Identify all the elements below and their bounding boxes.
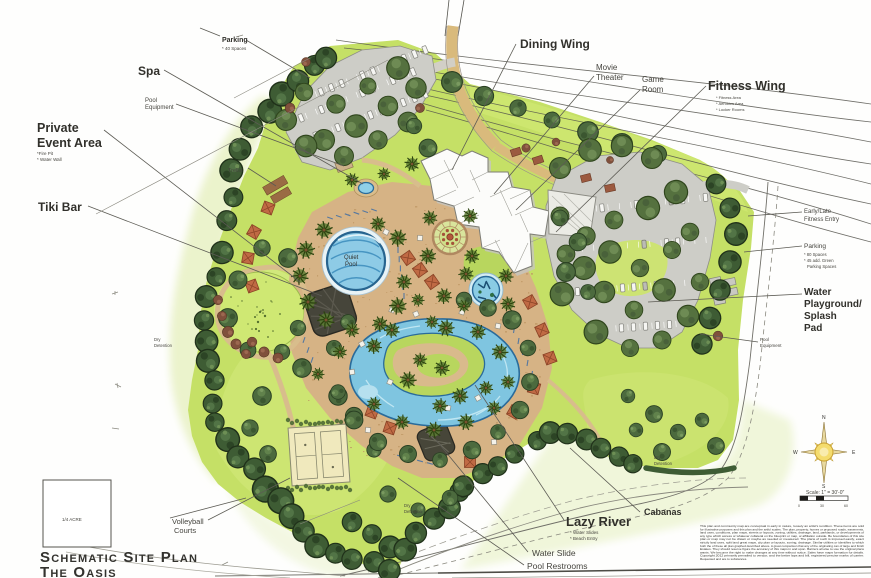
svg-text:Scale: 1" = 30′-0″: Scale: 1" = 30′-0″ [806,490,844,496]
svg-text:Parking Spaces: Parking Spaces [807,264,836,269]
svg-text:Pool: Pool [145,98,157,104]
svg-text:1/4 ACRE: 1/4 ACRE [62,517,82,522]
svg-text:N: N [822,415,826,421]
svg-text:Parking: Parking [222,37,248,44]
svg-text:Tiki Bar: Tiki Bar [38,200,82,214]
svg-text:Pool: Pool [345,262,357,268]
svg-text:Courts: Courts [174,526,196,535]
svg-text:Room: Room [642,85,664,94]
svg-text:* Aerobics Area: * Aerobics Area [716,101,744,106]
svg-text:* Water Slides: * Water Slides [570,530,599,535]
svg-text:Dry: Dry [404,503,411,508]
svg-text:Spa: Spa [138,64,160,78]
svg-text:Movie: Movie [596,63,618,72]
svg-text:Equipment: Equipment [760,343,782,348]
svg-text:Splash: Splash [804,311,837,322]
svg-text:Theater: Theater [596,73,624,82]
svg-text:Trellis: Trellis [228,168,243,174]
svg-text:30: 30 [820,504,824,508]
svg-text:Fitness Wing: Fitness Wing [708,79,786,93]
svg-text:Lazy River: Lazy River [566,514,631,529]
svg-text:60: 60 [844,504,848,508]
svg-text:Fitness Entry: Fitness Entry [804,217,839,223]
svg-text:Detention: Detention [404,509,423,514]
svg-text:Dry: Dry [154,337,161,342]
svg-text:Game: Game [642,75,664,84]
svg-text:Early/Late: Early/Late [804,209,832,215]
svg-text:The Oasis: The Oasis [40,564,117,578]
svg-text:0: 0 [798,504,800,508]
svg-text:*Fire Pit: *Fire Pit [37,151,54,156]
svg-text:Dry: Dry [654,455,661,460]
svg-text:W: W [793,450,798,456]
svg-text:Private: Private [37,121,79,135]
svg-text:Requested and are to substance: Requested and are to substances. [700,557,747,561]
svg-text:Equipment: Equipment [145,105,174,111]
svg-text:* 45 add. Green: * 45 add. Green [804,258,834,263]
svg-text:Water Slide: Water Slide [532,548,576,558]
svg-text:Dining Wing: Dining Wing [520,37,590,51]
svg-text:* Beach Entry: * Beach Entry [570,536,598,541]
svg-text:Detention: Detention [154,343,173,348]
svg-text:Cabanas: Cabanas [644,507,682,517]
svg-text:* Fitness Area: * Fitness Area [716,95,742,100]
svg-text:Water: Water [804,287,832,298]
svg-text:* Water Wall: * Water Wall [37,157,62,162]
svg-text:Detention: Detention [654,461,673,466]
svg-text:* 40 Spaces: * 40 Spaces [222,46,247,51]
svg-text:Pad: Pad [804,323,822,334]
svg-text:Pool Restrooms: Pool Restrooms [527,561,587,571]
svg-text:Playground/: Playground/ [804,299,862,310]
svg-text:Pool: Pool [760,337,769,342]
svg-text:Parking: Parking [804,243,826,250]
svg-text:* 80 Spaces: * 80 Spaces [804,252,827,257]
svg-text:Quiet: Quiet [344,255,359,261]
svg-text:Volleyball: Volleyball [172,517,204,526]
svg-text:* Locker Rooms: * Locker Rooms [716,107,744,112]
svg-text:Event Area: Event Area [37,136,103,150]
